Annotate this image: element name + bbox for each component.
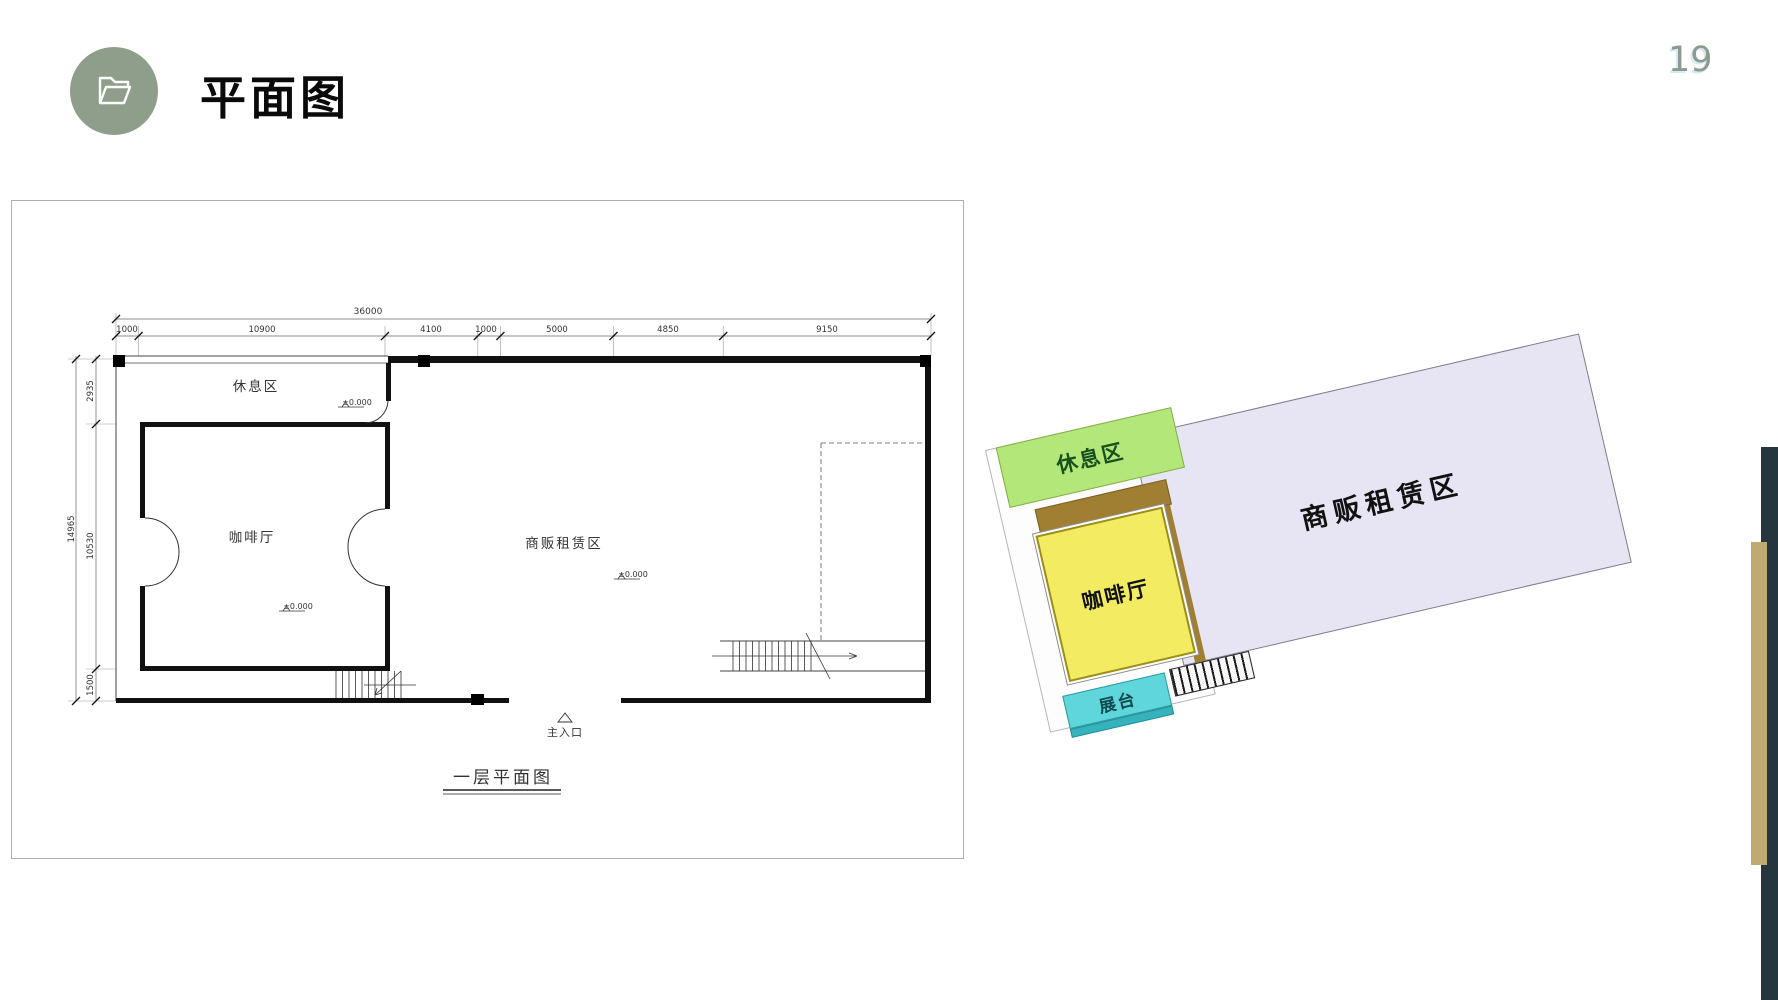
render-3d-figure: 商贩租赁区 休息区 咖啡厅 展台 xyxy=(919,251,1691,798)
elevation-mark-vendor: ±0.000 xyxy=(614,570,648,579)
zone-cafe-label: 咖啡厅 xyxy=(1079,572,1153,617)
dim-seg-9150: 9150 xyxy=(816,325,838,335)
zone-vendor: 商贩租赁区 xyxy=(1131,333,1632,665)
room-label-rest: 休息区 xyxy=(233,378,280,395)
door-arcs-cafe-right xyxy=(348,509,385,586)
floor-plan-drawing: 36000 1000 10900 4100 1000 5000 4850 915… xyxy=(12,201,963,858)
door-arcs-cafe-left xyxy=(145,518,179,586)
dim-seg-10530: 10530 xyxy=(86,532,96,559)
zone-vendor-label: 商贩租赁区 xyxy=(1296,462,1466,537)
entrance-label: 主入口 xyxy=(547,726,583,739)
wall-top-thick xyxy=(388,356,931,363)
cafe-wall-top xyxy=(140,422,390,427)
divider-wall-stub xyxy=(386,363,391,401)
dim-total-height: 14965 xyxy=(67,515,77,542)
wall-bottom-left xyxy=(116,698,509,703)
dim-total-width: 36000 xyxy=(354,307,383,317)
room-label-vendor: 商贩租赁区 xyxy=(525,536,603,552)
dim-seg-1000a: 1000 xyxy=(116,325,138,335)
slide: 平面图 19 36000 1000 10900 4100 1000 5000 4… xyxy=(0,0,1778,1000)
dim-seg-5000: 5000 xyxy=(546,325,568,335)
plan-caption: 一层平面图 xyxy=(453,768,553,788)
title-accent-circle xyxy=(70,47,158,135)
cafe-wall-right-upper xyxy=(385,422,390,509)
svg-text:±0.000: ±0.000 xyxy=(283,602,313,611)
cafe-wall-bottom xyxy=(140,666,390,671)
room-label-cafe: 咖啡厅 xyxy=(229,530,276,546)
cafe-wall-right-lower xyxy=(385,586,390,671)
dashed-outline xyxy=(821,443,925,641)
svg-text:±0.000: ±0.000 xyxy=(618,570,648,579)
zone-booth-label: 展台 xyxy=(1096,684,1139,717)
zone-rest-label: 休息区 xyxy=(1053,435,1127,480)
column-bottom xyxy=(471,694,484,705)
stair-small-arrow xyxy=(364,671,416,695)
dim-seg-4850: 4850 xyxy=(657,325,679,335)
stair-big-arrow xyxy=(712,653,857,659)
elevation-mark-cafe: ±0.000 xyxy=(279,602,313,611)
column-top-right xyxy=(920,355,931,367)
column-top-left xyxy=(113,355,125,367)
floor-plan-figure: 36000 1000 10900 4100 1000 5000 4850 915… xyxy=(11,200,964,859)
dim-extension-lines-top xyxy=(116,313,931,356)
page-number: 19 xyxy=(1668,40,1713,80)
stair-small-treads xyxy=(336,671,401,698)
elevation-mark-rest: ±0.000 xyxy=(338,398,372,407)
svg-text:±0.000: ±0.000 xyxy=(342,398,372,407)
dim-seg-2935: 2935 xyxy=(86,380,96,402)
dim-seg-1500: 1500 xyxy=(86,674,96,696)
folder-icon xyxy=(92,72,136,110)
cafe-wall-left-lower xyxy=(140,586,145,671)
cafe-wall-left-upper xyxy=(140,422,145,518)
decor-gold-bar xyxy=(1751,542,1767,865)
dim-seg-4100: 4100 xyxy=(420,325,442,335)
column-top-middle xyxy=(418,355,430,367)
wall-bottom-right xyxy=(621,698,931,703)
page-title: 平面图 xyxy=(200,62,350,128)
entrance-triangle-icon xyxy=(558,713,572,722)
dim-seg-10900: 10900 xyxy=(248,325,275,335)
dim-seg-1000b: 1000 xyxy=(475,325,497,335)
